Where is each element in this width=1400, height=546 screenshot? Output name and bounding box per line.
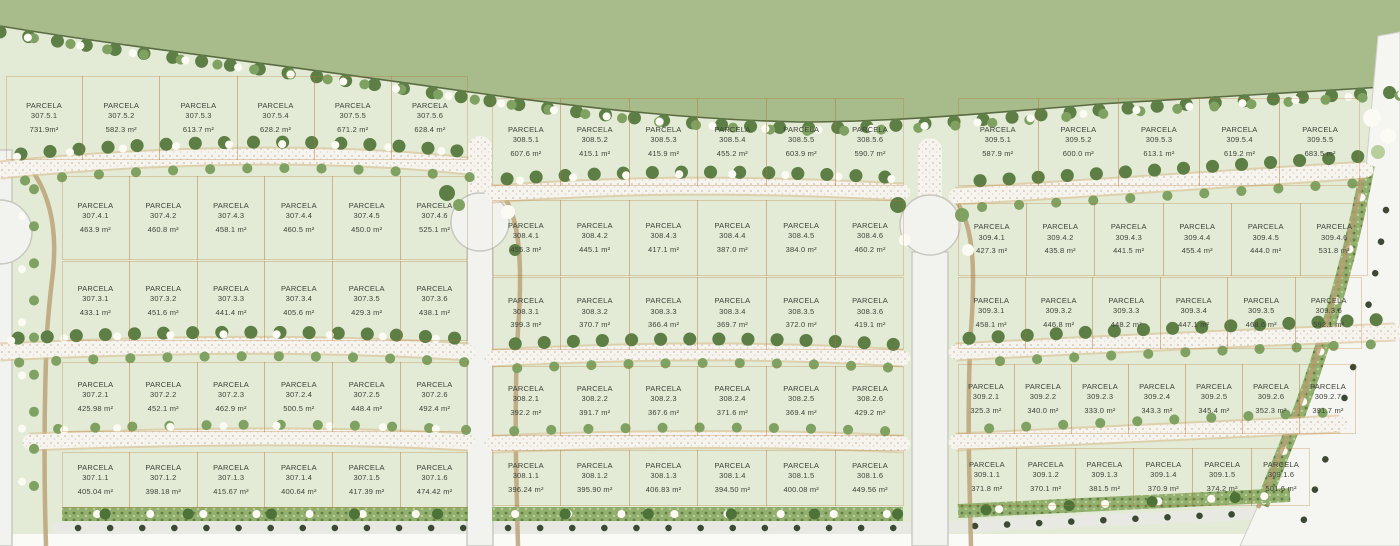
parcel-word: PARCELA — [213, 284, 249, 295]
parcel-id: 308.3.1 — [513, 307, 539, 318]
parcel-id: 308.1.6 — [857, 471, 883, 482]
parcel-area: 449.56 m² — [852, 485, 888, 496]
parcel-word: PARCELA — [577, 384, 613, 395]
parcel-id: 309.4.5 — [1253, 233, 1279, 244]
parcel-309.3.2[interactable]: PARCELA 309.3.2 446.8 m² — [1025, 277, 1093, 349]
parcel-id: 307.1.5 — [354, 473, 380, 484]
parcel-area: 433.1 m² — [80, 308, 111, 319]
parcel-id: 309.2.7 — [1315, 392, 1341, 403]
parcel-area: 450.0 m² — [351, 225, 382, 236]
parcel-307.3.4[interactable]: PARCELA 307.3.4 405.6 m² — [264, 261, 332, 341]
parcel-308.1.1[interactable]: PARCELA 308.1.1 396.24 m² — [492, 450, 560, 506]
parcel-id: 307.5.1 — [31, 111, 57, 122]
parcel-id: 309.2.2 — [1030, 392, 1056, 403]
parcel-area: 429.3 m² — [351, 308, 382, 319]
parcel-id: 307.3.4 — [286, 294, 312, 305]
parcel-309.1.2[interactable]: PARCELA 309.1.2 370.1 m² — [1016, 448, 1075, 506]
parcel-word: PARCELA — [417, 463, 453, 474]
parcel-id: 309.1.4 — [1150, 470, 1176, 481]
parcel-id: 308.2.2 — [582, 394, 608, 405]
parcel-id: 309.2.4 — [1144, 392, 1170, 403]
parcel-309.5.2[interactable]: PARCELA 309.5.2 600.0 m² — [1038, 98, 1119, 186]
parcel-word: PARCELA — [646, 221, 682, 232]
parcel-word: PARCELA — [783, 461, 819, 472]
parcel-word: PARCELA — [783, 125, 819, 136]
parcel-word: PARCELA — [77, 284, 113, 295]
parcel-id: 309.3.1 — [978, 306, 1004, 317]
parcel-308.1.4[interactable]: PARCELA 308.1.4 394.50 m² — [697, 450, 766, 506]
parcel-307.4.1[interactable]: PARCELA 307.4.1 463.9 m² — [62, 176, 129, 260]
parcel-309.5.1[interactable]: PARCELA 309.5.1 587.9 m² — [958, 98, 1038, 186]
parcel-id: 307.4.2 — [150, 211, 176, 222]
parcel-308.4.5[interactable]: PARCELA 308.4.5 384.0 m² — [766, 200, 835, 276]
parcel-area: 448.2 m² — [1111, 320, 1142, 331]
parcel-id: 308.5.1 — [513, 135, 539, 146]
parcel-309.1.3[interactable]: PARCELA 309.1.3 381.5 m² — [1075, 448, 1134, 506]
parcel-word: PARCELA — [1082, 382, 1118, 393]
parcel-307.2.6[interactable]: PARCELA 307.2.6 492.4 m² — [400, 362, 468, 432]
parcel-id: 308.3.6 — [857, 307, 883, 318]
parcel-area: 455.4 m² — [1182, 246, 1213, 257]
parcel-row-309-5: PARCELA 309.5.1 587.9 m² PARCELA 309.5.2… — [958, 98, 1360, 186]
parcel-area: 387.0 m² — [717, 245, 748, 256]
parcel-word: PARCELA — [968, 382, 1004, 393]
parcel-word: PARCELA — [213, 380, 249, 391]
parcel-id: 309.1.3 — [1091, 470, 1117, 481]
parcel-word: PARCELA — [852, 296, 888, 307]
parcel-area: 441.5 m² — [1113, 246, 1144, 257]
parcel-id: 309.1.6 — [1268, 470, 1294, 481]
parcel-307.1.2[interactable]: PARCELA 307.1.2 398.18 m² — [129, 452, 197, 508]
parcel-308.2.3[interactable]: PARCELA 308.2.3 367.6 m² — [629, 366, 698, 436]
parcel-id: 308.3.5 — [788, 307, 814, 318]
parcel-word: PARCELA — [1316, 222, 1352, 233]
parcel-id: 309.3.3 — [1113, 306, 1139, 317]
parcel-area: 435.8 m² — [1045, 246, 1076, 257]
parcel-area: 671.2 m² — [337, 125, 368, 136]
parcel-id: 308.2.6 — [857, 394, 883, 405]
parcel-word: PARCELA — [417, 380, 453, 391]
parcel-id: 307.2.3 — [218, 390, 244, 401]
parcel-id: 309.5.4 — [1226, 135, 1252, 146]
parcel-309.3.4[interactable]: PARCELA 309.3.4 447.1 m² — [1160, 277, 1228, 349]
parcel-word: PARCELA — [714, 384, 750, 395]
parcel-id: 309.5.5 — [1307, 135, 1333, 146]
parcel-word: PARCELA — [213, 463, 249, 474]
parcel-word: PARCELA — [77, 463, 113, 474]
parcel-area: 458.1 m² — [215, 225, 246, 236]
parcel-id: 308.4.1 — [513, 231, 539, 242]
parcel-307.5.4[interactable]: PARCELA 307.5.4 628.2 m² — [237, 76, 314, 160]
parcel-area: 370.9 m² — [1148, 484, 1179, 495]
parcel-word: PARCELA — [714, 461, 750, 472]
parcel-word: PARCELA — [508, 125, 544, 136]
parcel-area: 333.0 m² — [1084, 406, 1115, 417]
parcel-word: PARCELA — [852, 384, 888, 395]
parcel-307.4.3[interactable]: PARCELA 307.4.3 458.1 m² — [197, 176, 265, 260]
parcel-307.3.5[interactable]: PARCELA 307.3.5 429.3 m² — [332, 261, 400, 341]
parcel-309.4.1[interactable]: PARCELA 309.4.1 427.3 m² — [958, 203, 1026, 276]
parcel-word: PARCELA — [145, 463, 181, 474]
parcel-308.4.4[interactable]: PARCELA 308.4.4 387.0 m² — [697, 200, 766, 276]
parcel-id: 309.1.2 — [1033, 470, 1059, 481]
parcel-word: PARCELA — [577, 221, 613, 232]
parcel-id: 309.3.5 — [1248, 306, 1274, 317]
parcel-id: 309.3.2 — [1046, 306, 1072, 317]
parcel-word: PARCELA — [973, 296, 1009, 307]
parcel-307.5.1[interactable]: PARCELA 307.5.1 731.9m² — [6, 76, 82, 160]
parcel-id: 308.3.4 — [719, 307, 745, 318]
parcel-308.5.6[interactable]: PARCELA 308.5.6 590.7 m² — [835, 98, 904, 186]
parcel-word: PARCELA — [1302, 125, 1338, 136]
parcel-area: 394.50 m² — [715, 485, 751, 496]
parcel-area: 628.2 m² — [260, 125, 291, 136]
parcel-id: 309.5.3 — [1146, 135, 1172, 146]
parcel-word: PARCELA — [577, 296, 613, 307]
parcel-row-308-1: PARCELA 308.1.1 396.24 m² PARCELA 308.1.… — [492, 450, 904, 506]
parcel-word: PARCELA — [783, 221, 819, 232]
parcel-row-309-4: PARCELA 309.4.1 427.3 m² PARCELA 309.4.2… — [958, 203, 1368, 276]
parcel-word: PARCELA — [1196, 382, 1232, 393]
parcel-id: 307.2.5 — [354, 390, 380, 401]
parcel-307.3.2[interactable]: PARCELA 307.3.2 451.6 m² — [129, 261, 197, 341]
parcel-309.4.3[interactable]: PARCELA 309.4.3 441.5 m² — [1094, 203, 1163, 276]
parcel-word: PARCELA — [417, 284, 453, 295]
parcel-id: 307.4.1 — [82, 211, 108, 222]
parcel-id: 307.2.2 — [150, 390, 176, 401]
parcel-area: 441.4 m² — [215, 308, 246, 319]
parcel-area: 501.6 m² — [1265, 484, 1296, 495]
parcel-area: 427.3 m² — [976, 246, 1007, 257]
parcel-309.5.4[interactable]: PARCELA 309.5.4 619.2 m² — [1199, 98, 1280, 186]
parcel-id: 309.1.1 — [974, 470, 1000, 481]
parcel-id: 307.2.1 — [82, 390, 108, 401]
parcel-area: 405.6 m² — [283, 308, 314, 319]
parcel-307.2.3[interactable]: PARCELA 307.2.3 462.9 m² — [197, 362, 265, 432]
parcel-308.1.2[interactable]: PARCELA 308.1.2 395.90 m² — [560, 450, 629, 506]
parcel-word: PARCELA — [349, 284, 385, 295]
parcel-id: 308.4.4 — [719, 231, 745, 242]
parcel-307.3.1[interactable]: PARCELA 307.3.1 433.1 m² — [62, 261, 129, 341]
parcel-309.5.5[interactable]: PARCELA 309.5.5 683.5 m² — [1279, 98, 1360, 186]
parcel-307.2.4[interactable]: PARCELA 307.2.4 500.5 m² — [264, 362, 332, 432]
parcel-308.3.6[interactable]: PARCELA 308.3.6 419.1 m² — [835, 277, 904, 350]
parcel-308.1.6[interactable]: PARCELA 308.1.6 449.56 m² — [835, 450, 904, 506]
parcel-area: 419.1 m² — [854, 320, 885, 331]
parcel-307.2.1[interactable]: PARCELA 307.2.1 425.98 m² — [62, 362, 129, 432]
parcel-word: PARCELA — [77, 380, 113, 391]
parcel-word: PARCELA — [508, 296, 544, 307]
parcel-id: 307.1.6 — [421, 473, 447, 484]
parcel-area: 455.3 m² — [510, 245, 541, 256]
parcel-area: 460.5 m² — [283, 225, 314, 236]
parcel-word: PARCELA — [1111, 222, 1147, 233]
parcel-word: PARCELA — [26, 101, 62, 112]
parcel-308.4.6[interactable]: PARCELA 308.4.6 460.2 m² — [835, 200, 904, 276]
parcel-id: 307.5.3 — [185, 111, 211, 122]
parcel-309.4.4[interactable]: PARCELA 309.4.4 455.4 m² — [1163, 203, 1232, 276]
parcel-area: 345.4 m² — [1198, 406, 1229, 417]
parcel-id: 309.4.4 — [1184, 233, 1210, 244]
parcel-word: PARCELA — [969, 460, 1005, 471]
parcel-word: PARCELA — [349, 463, 385, 474]
parcel-word: PARCELA — [1263, 460, 1299, 471]
parcel-307.5.3[interactable]: PARCELA 307.5.3 613.7 m² — [159, 76, 236, 160]
parcel-308.4.1[interactable]: PARCELA 308.4.1 455.3 m² — [492, 200, 560, 276]
parcel-308.2.4[interactable]: PARCELA 308.2.4 371.6 m² — [697, 366, 766, 436]
parcel-area: 444.0 m² — [1250, 246, 1281, 257]
parcel-id: 308.4.5 — [788, 231, 814, 242]
parcel-id: 308.1.1 — [513, 471, 539, 482]
parcel-area: 405.04 m² — [78, 487, 114, 498]
parcel-308.2.6[interactable]: PARCELA 308.2.6 429.2 m² — [835, 366, 904, 436]
parcel-area: 369.4 m² — [786, 408, 817, 419]
parcel-row-307-3: PARCELA 307.3.1 433.1 m² PARCELA 307.3.2… — [62, 261, 468, 341]
parcel-id: 308.5.5 — [788, 135, 814, 146]
parcel-308.2.1[interactable]: PARCELA 308.2.1 392.2 m² — [492, 366, 560, 436]
parcel-row-308-5: PARCELA 308.5.1 607.6 m² PARCELA 308.5.2… — [492, 98, 904, 186]
parcel-area: 592.1 m² — [1313, 320, 1344, 331]
parcel-word: PARCELA — [1087, 460, 1123, 471]
parcel-id: 307.2.6 — [421, 390, 447, 401]
parcel-word: PARCELA — [1243, 296, 1279, 307]
parcel-word: PARCELA — [508, 384, 544, 395]
parcel-row-309-1: PARCELA 309.1.1 371.8 m² PARCELA 309.1.2… — [958, 448, 1310, 506]
parcel-word: PARCELA — [335, 101, 371, 112]
parcel-309.2.1[interactable]: PARCELA 309.2.1 325.3 m² — [958, 364, 1014, 434]
parcel-309.3.3[interactable]: PARCELA 309.3.3 448.2 m² — [1092, 277, 1160, 349]
parcel-area: 370.7 m² — [579, 320, 610, 331]
parcel-word: PARCELA — [281, 463, 317, 474]
parcel-word: PARCELA — [1028, 460, 1064, 471]
parcel-area: 500.5 m² — [283, 404, 314, 415]
parcel-id: 309.2.5 — [1201, 392, 1227, 403]
parcel-area: 372.0 m² — [786, 320, 817, 331]
parcel-area: 417.39 m² — [349, 487, 385, 498]
parcel-area: 731.9m² — [30, 125, 59, 136]
parcel-word: PARCELA — [145, 380, 181, 391]
parcel-309.4.5[interactable]: PARCELA 309.4.5 444.0 m² — [1231, 203, 1300, 276]
parcel-309.1.5[interactable]: PARCELA 309.1.5 374.2 m² — [1192, 448, 1251, 506]
parcel-id: 308.3.2 — [582, 307, 608, 318]
parcel-area: 613.1 m² — [1143, 149, 1174, 160]
parcel-309.3.5[interactable]: PARCELA 309.3.5 468.6 m² — [1227, 277, 1295, 349]
parcel-307.1.6[interactable]: PARCELA 307.1.6 474.42 m² — [400, 452, 468, 508]
parcel-row-307-1: PARCELA 307.1.1 405.04 m² PARCELA 307.1.… — [62, 452, 468, 508]
parcel-row-308-2: PARCELA 308.2.1 392.2 m² PARCELA 308.2.2… — [492, 366, 904, 436]
parcel-word: PARCELA — [577, 461, 613, 472]
parcel-area: 384.0 m² — [786, 245, 817, 256]
parcel-308.3.1[interactable]: PARCELA 308.3.1 399.3 m² — [492, 277, 560, 350]
parcel-308.5.4[interactable]: PARCELA 308.5.4 455.2 m² — [697, 98, 766, 186]
parcel-308.5.1[interactable]: PARCELA 308.5.1 607.6 m² — [492, 98, 560, 186]
parcel-area: 582.3 m² — [106, 125, 137, 136]
parcel-id: 309.5.2 — [1065, 135, 1091, 146]
parcel-id: 308.2.3 — [650, 394, 676, 405]
parcel-309.2.4[interactable]: PARCELA 309.2.4 343.3 m² — [1128, 364, 1185, 434]
parcel-word: PARCELA — [508, 221, 544, 232]
parcel-word: PARCELA — [980, 125, 1016, 136]
parcel-308.3.4[interactable]: PARCELA 308.3.4 369.7 m² — [697, 277, 766, 350]
parcel-309.5.3[interactable]: PARCELA 309.5.3 613.1 m² — [1118, 98, 1199, 186]
parcel-307.4.5[interactable]: PARCELA 307.4.5 450.0 m² — [332, 176, 400, 260]
parcel-area: 381.5 m² — [1089, 484, 1120, 495]
parcel-308.2.2[interactable]: PARCELA 308.2.2 391.7 m² — [560, 366, 629, 436]
parcel-307.5.5[interactable]: PARCELA 307.5.5 671.2 m² — [314, 76, 391, 160]
parcel-area: 460.2 m² — [854, 245, 885, 256]
parcel-area: 429.2 m² — [854, 408, 885, 419]
parcel-word: PARCELA — [1060, 125, 1096, 136]
parcel-row-307-2: PARCELA 307.2.1 425.98 m² PARCELA 307.2.… — [62, 362, 468, 432]
parcel-map-canvas: PARCELA 307.5.1 731.9m² PARCELA 307.5.2 … — [0, 0, 1400, 546]
parcel-row-309-2: PARCELA 309.2.1 325.3 m² PARCELA 309.2.2… — [958, 364, 1356, 434]
parcel-area: 438.1 m² — [419, 308, 450, 319]
parcel-word: PARCELA — [1179, 222, 1215, 233]
parcel-area: 452.1 m² — [148, 404, 179, 415]
parcel-word: PARCELA — [1248, 222, 1284, 233]
parcel-word: PARCELA — [783, 384, 819, 395]
parcel-id: 308.2.1 — [513, 394, 539, 405]
parcel-id: 308.5.2 — [582, 135, 608, 146]
parcel-309.1.1[interactable]: PARCELA 309.1.1 371.8 m² — [958, 448, 1016, 506]
parcel-word: PARCELA — [1025, 382, 1061, 393]
parcel-area: 396.24 m² — [508, 485, 544, 496]
parcel-307.4.2[interactable]: PARCELA 307.4.2 460.8 m² — [129, 176, 197, 260]
parcel-word: PARCELA — [1311, 296, 1347, 307]
parcel-307.1.5[interactable]: PARCELA 307.1.5 417.39 m² — [332, 452, 400, 508]
parcel-308.5.5[interactable]: PARCELA 308.5.5 603.9 m² — [766, 98, 835, 186]
parcel-309.2.5[interactable]: PARCELA 309.2.5 345.4 m² — [1185, 364, 1242, 434]
parcel-word: PARCELA — [1141, 125, 1177, 136]
parcel-309.3.6[interactable]: PARCELA 309.3.6 592.1 m² — [1295, 277, 1363, 349]
parcel-area: 352.3 m² — [1255, 406, 1286, 417]
parcel-308.4.3[interactable]: PARCELA 308.4.3 417.1 m² — [629, 200, 698, 276]
parcel-id: 309.2.3 — [1087, 392, 1113, 403]
parcel-word: PARCELA — [646, 125, 682, 136]
parcel-309.2.6[interactable]: PARCELA 309.2.6 352.3 m² — [1242, 364, 1299, 434]
parcel-309.1.4[interactable]: PARCELA 309.1.4 370.9 m² — [1133, 448, 1192, 506]
parcel-id: 309.3.6 — [1316, 306, 1342, 317]
parcel-307.3.3[interactable]: PARCELA 307.3.3 441.4 m² — [197, 261, 265, 341]
parcel-308.5.2[interactable]: PARCELA 308.5.2 415.1 m² — [560, 98, 629, 186]
parcel-word: PARCELA — [646, 384, 682, 395]
parcel-area: 683.5 m² — [1305, 149, 1336, 160]
parcel-id: 308.1.3 — [650, 471, 676, 482]
parcel-id: 308.3.3 — [650, 307, 676, 318]
parcel-307.5.2[interactable]: PARCELA 307.5.2 582.3 m² — [82, 76, 159, 160]
parcel-row-308-4: PARCELA 308.4.1 455.3 m² PARCELA 308.4.2… — [492, 200, 904, 276]
parcel-307.4.4[interactable]: PARCELA 307.4.4 460.5 m² — [264, 176, 332, 260]
parcel-id: 308.4.6 — [857, 231, 883, 242]
parcel-word: PARCELA — [1310, 382, 1346, 393]
parcel-area: 458.1 m² — [976, 320, 1007, 331]
parcel-id: 308.1.2 — [582, 471, 608, 482]
parcel-308.3.3[interactable]: PARCELA 308.3.3 366.4 m² — [629, 277, 698, 350]
parcel-area: 531.8 m² — [1319, 246, 1350, 257]
parcel-area: 600.0 m² — [1063, 149, 1094, 160]
parcel-id: 308.2.5 — [788, 394, 814, 405]
parcel-309.1.6[interactable]: PARCELA 309.1.6 501.6 m² — [1251, 448, 1310, 506]
parcel-id: 307.4.5 — [354, 211, 380, 222]
parcel-308.5.3[interactable]: PARCELA 308.5.3 415.9 m² — [629, 98, 698, 186]
parcel-id: 307.4.6 — [421, 211, 447, 222]
parcel-id: 307.5.2 — [108, 111, 134, 122]
parcel-id: 308.4.3 — [650, 231, 676, 242]
parcel-308.1.5[interactable]: PARCELA 308.1.5 400.08 m² — [766, 450, 835, 506]
parcel-id: 307.1.3 — [218, 473, 244, 484]
parcel-308.2.5[interactable]: PARCELA 308.2.5 369.4 m² — [766, 366, 835, 436]
parcel-309.2.3[interactable]: PARCELA 309.2.3 333.0 m² — [1071, 364, 1128, 434]
parcel-307.5.6[interactable]: PARCELA 307.5.6 628.4 m² — [391, 76, 468, 160]
parcel-307.4.6[interactable]: PARCELA 307.4.6 525.1 m² — [400, 176, 468, 260]
parcel-area: 400.64 m² — [281, 487, 317, 498]
parcel-word: PARCELA — [1145, 460, 1181, 471]
parcel-id: 307.3.2 — [150, 294, 176, 305]
parcel-area: 619.2 m² — [1224, 149, 1255, 160]
parcel-area: 399.3 m² — [510, 320, 541, 331]
parcel-id: 308.5.6 — [857, 135, 883, 146]
parcel-307.1.4[interactable]: PARCELA 307.1.4 400.64 m² — [264, 452, 332, 508]
parcel-word: PARCELA — [281, 201, 317, 212]
parcel-307.2.2[interactable]: PARCELA 307.2.2 452.1 m² — [129, 362, 197, 432]
parcel-word: PARCELA — [852, 221, 888, 232]
parcel-307.2.5[interactable]: PARCELA 307.2.5 448.4 m² — [332, 362, 400, 432]
parcel-area: 391.7 m² — [579, 408, 610, 419]
parcel-area: 447.1 m² — [1178, 320, 1209, 331]
parcel-word: PARCELA — [646, 296, 682, 307]
parcel-309.4.2[interactable]: PARCELA 309.4.2 435.8 m² — [1026, 203, 1095, 276]
parcel-area: 340.0 m² — [1027, 406, 1058, 417]
parcel-308.3.2[interactable]: PARCELA 308.3.2 370.7 m² — [560, 277, 629, 350]
parcel-word: PARCELA — [417, 201, 453, 212]
parcel-area: 371.8 m² — [971, 484, 1002, 495]
parcel-id: 307.1.2 — [150, 473, 176, 484]
parcel-area: 391.7 m² — [1312, 406, 1343, 417]
parcel-area: 613.7 m² — [183, 125, 214, 136]
parcel-309.2.2[interactable]: PARCELA 309.2.2 340.0 m² — [1014, 364, 1071, 434]
parcel-id: 307.2.4 — [286, 390, 312, 401]
parcel-word: PARCELA — [145, 201, 181, 212]
parcel-id: 309.2.1 — [973, 392, 999, 403]
parcel-307.1.3[interactable]: PARCELA 307.1.3 415.67 m² — [197, 452, 265, 508]
parcel-row-307-5: PARCELA 307.5.1 731.9m² PARCELA 307.5.2 … — [6, 76, 468, 160]
parcel-309.4.6[interactable]: PARCELA 309.4.6 531.8 m² — [1300, 203, 1369, 276]
parcel-id: 307.3.6 — [421, 294, 447, 305]
parcel-307.1.1[interactable]: PARCELA 307.1.1 405.04 m² — [62, 452, 129, 508]
parcel-308.4.2[interactable]: PARCELA 308.4.2 445.1 m² — [560, 200, 629, 276]
parcel-row-307-4: PARCELA 307.4.1 463.9 m² PARCELA 307.4.2… — [62, 176, 468, 260]
parcel-id: 309.3.4 — [1181, 306, 1207, 317]
parcel-area: 370.1 m² — [1030, 484, 1061, 495]
parcel-area: 415.9 m² — [648, 149, 679, 160]
parcel-area: 468.6 m² — [1246, 320, 1277, 331]
parcel-word: PARCELA — [852, 461, 888, 472]
parcel-area: 425.98 m² — [78, 404, 114, 415]
parcel-307.3.6[interactable]: PARCELA 307.3.6 438.1 m² — [400, 261, 468, 341]
parcel-word: PARCELA — [974, 222, 1010, 233]
parcel-309.2.7[interactable]: PARCELA 309.2.7 391.7 m² — [1299, 364, 1356, 434]
parcel-id: 307.1.1 — [82, 473, 108, 484]
parcel-308.1.3[interactable]: PARCELA 308.1.3 406.83 m² — [629, 450, 698, 506]
parcel-word: PARCELA — [412, 101, 448, 112]
parcel-id: 309.4.2 — [1047, 233, 1073, 244]
parcel-id: 307.5.5 — [340, 111, 366, 122]
parcel-word: PARCELA — [508, 461, 544, 472]
parcel-308.3.5[interactable]: PARCELA 308.3.5 372.0 m² — [766, 277, 835, 350]
parcel-area: 445.1 m² — [579, 245, 610, 256]
parcel-area: 325.3 m² — [970, 406, 1001, 417]
parcel-309.3.1[interactable]: PARCELA 309.3.1 458.1 m² — [958, 277, 1025, 349]
